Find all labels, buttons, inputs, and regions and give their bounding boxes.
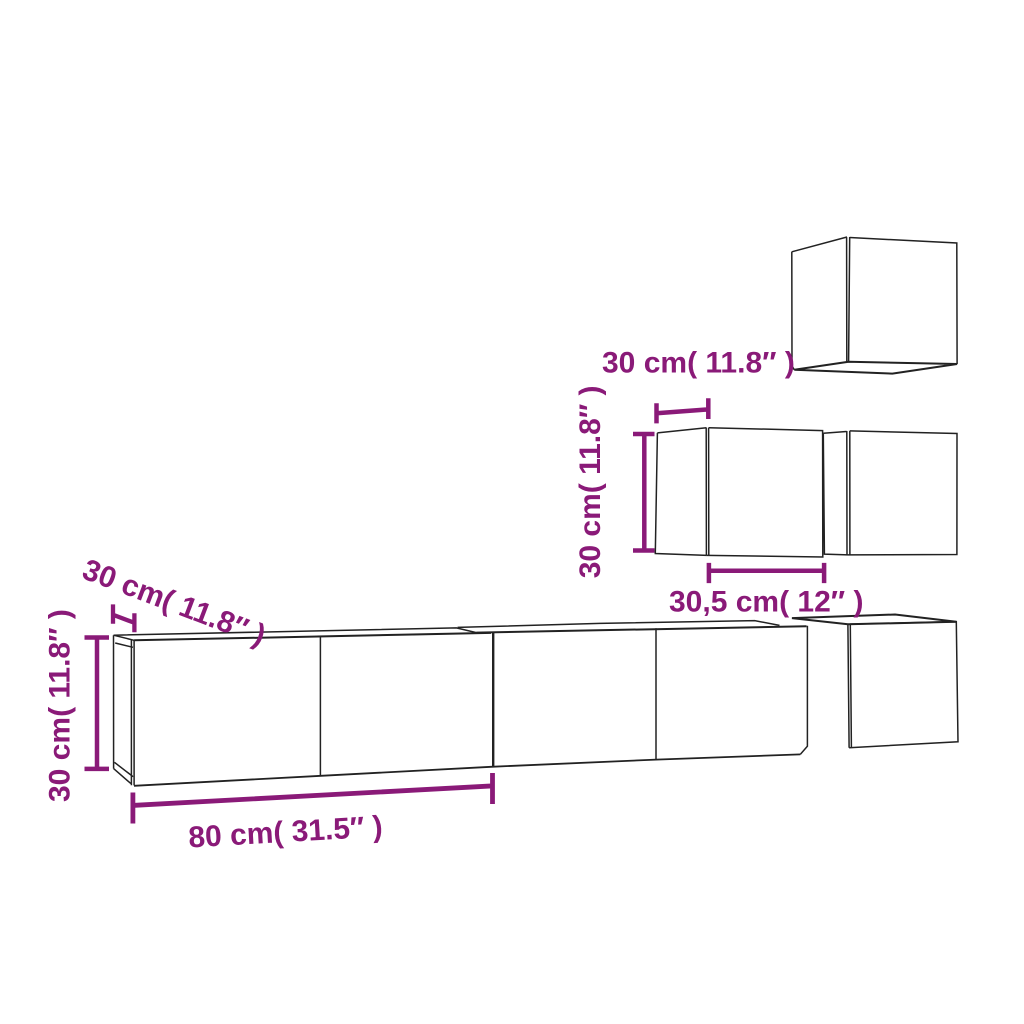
svg-text:30 cm( 11.8″ ): 30 cm( 11.8″ ) <box>574 385 607 578</box>
svg-text:30 cm( 11.8″ ): 30 cm( 11.8″ ) <box>44 609 77 802</box>
svg-text:30 cm( 11.8″ ): 30 cm( 11.8″ ) <box>602 347 795 380</box>
svg-text:30,5 cm( 12″ ): 30,5 cm( 12″ ) <box>669 586 863 619</box>
